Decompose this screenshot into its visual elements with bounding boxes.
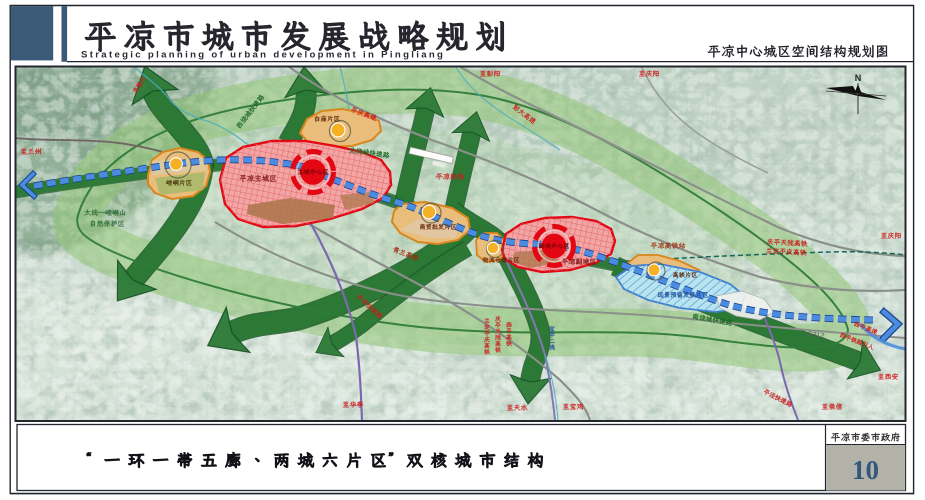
svg-text:Strategic planning of urban de: Strategic planning of urban development … (81, 50, 445, 61)
svg-text:10: 10 (852, 455, 879, 485)
svg-text:N: N (855, 73, 862, 83)
